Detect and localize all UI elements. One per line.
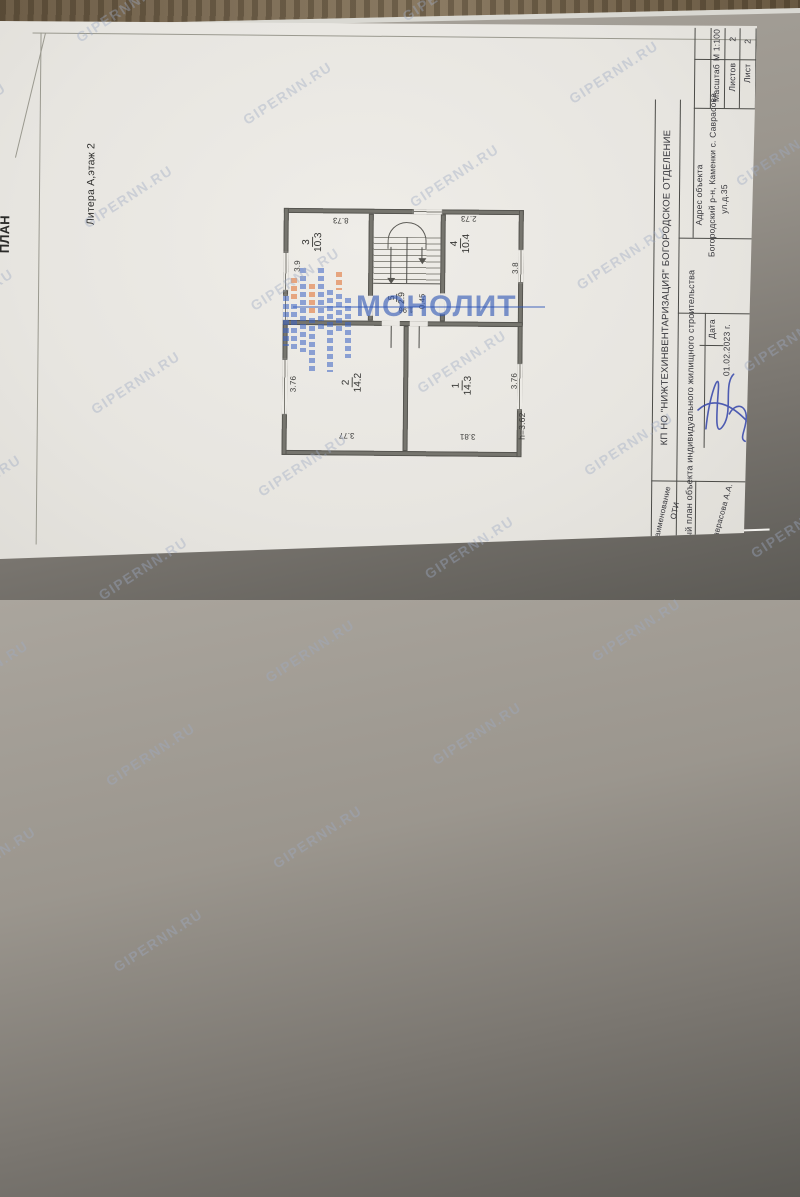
frame-top-line	[33, 32, 761, 40]
gipernn-watermark: GIPERNN.RU	[270, 802, 365, 871]
logo-bar	[283, 296, 289, 346]
sheets-value: 2	[727, 37, 737, 42]
sheets-label: Листов	[727, 63, 737, 92]
logo-bar	[327, 290, 333, 372]
logo-bar	[318, 268, 324, 330]
dim-room2-side: 3.76	[289, 376, 298, 392]
dim-overall-top: 8.73	[333, 216, 349, 225]
gipernn-watermark: GIPERNN.RU	[0, 637, 31, 706]
room3-label: 3 10.3	[301, 232, 324, 252]
stair-arrowhead-icon	[387, 278, 395, 284]
logo-bar	[291, 278, 297, 300]
room4-number: 4	[449, 239, 461, 249]
logo-bar	[345, 298, 351, 358]
photo-of-floorplan-document: { "page": { "litera": "Литера А,этаж 2",…	[0, 0, 800, 600]
room1-area: 14.3	[463, 376, 474, 396]
dim-room2-bottom: 3.77	[339, 431, 355, 440]
door-leaf-room2	[391, 326, 392, 348]
clipped-plan-title: ПЛАН	[0, 215, 12, 253]
stamp-line-b	[676, 100, 681, 560]
address-label: Адрес объекта	[694, 164, 705, 225]
org-name: КП НО "НИЖТЕХИНВЕНТАРИЗАЦИЯ" БОГОРОДСКОЕ…	[659, 130, 673, 446]
executor-name: Саврасова А.А.	[709, 483, 734, 544]
table-line-2	[724, 28, 726, 108]
gipernn-watermark: GIPERNN.RU	[589, 595, 684, 664]
table-line-4	[755, 28, 757, 108]
logo-bar	[309, 318, 315, 372]
wall-room-divider	[403, 326, 409, 451]
dim-room4-top: 2.73	[461, 214, 477, 223]
logo-bar	[336, 272, 342, 290]
wall-top	[284, 208, 524, 215]
wall-bottom	[282, 450, 522, 457]
room4-area: 10.4	[461, 234, 472, 254]
date-label: Дата	[707, 319, 717, 339]
date-cell-divider	[700, 345, 724, 346]
room3-area: 10.3	[313, 232, 324, 252]
room2-number: 2	[341, 378, 353, 388]
dim-room1-side: 3.76	[510, 373, 519, 389]
address-cell-bottom	[679, 238, 764, 240]
dim-room4-side: 3.8	[511, 262, 520, 274]
logo-bar	[300, 268, 306, 352]
room1-number: 1	[451, 381, 463, 391]
logo-bar	[336, 294, 342, 332]
room3-number: 3	[301, 237, 313, 247]
address-line2: ул.д.35	[719, 184, 729, 214]
sheet-label: Лист	[742, 64, 752, 83]
stair-direction-arc	[387, 222, 426, 249]
door-leaf-room1	[419, 326, 420, 348]
name-cell-separator	[695, 481, 697, 551]
monolit-watermark-text: МОНОЛИТ	[356, 290, 517, 324]
logo-bar	[309, 284, 315, 314]
dim-room1-bottom: 3.81	[460, 432, 476, 441]
litera-label: Литера А,этаж 2	[85, 143, 98, 225]
logo-bar	[291, 304, 297, 350]
org-row-bottom	[651, 480, 761, 482]
gipernn-watermark: GIPERNN.RU	[103, 720, 198, 789]
name-header-line2: ОТИ	[669, 501, 682, 520]
room4-label: 4 10.4	[449, 234, 472, 254]
scale-value: М 1:100	[711, 29, 721, 61]
address-line1: Богородский р-н, Каменки с. Саврасова	[706, 93, 718, 257]
dim-height-note: h=3.62	[517, 412, 527, 440]
table-bottom	[694, 108, 764, 110]
monolit-logo-icon	[283, 268, 355, 378]
gipernn-watermark: GIPERNN.RU	[0, 823, 39, 892]
gipernn-watermark: GIPERNN.RU	[429, 699, 524, 768]
frame-left-line	[36, 33, 42, 545]
gipernn-watermark: GIPERNN.RU	[748, 492, 800, 561]
window-top-wall	[413, 209, 443, 214]
gipernn-watermark: GIPERNN.RU	[262, 616, 357, 685]
room1-label: 1 14.3	[451, 376, 474, 396]
gipernn-watermark: GIPERNN.RU	[111, 906, 206, 975]
under-sheet-corner-line	[15, 33, 46, 158]
sheet-value: 2	[742, 39, 752, 44]
scale-label: Масштаб	[711, 64, 721, 102]
stair-arrowhead-icon-2	[418, 258, 426, 264]
table-line-3	[739, 28, 741, 108]
